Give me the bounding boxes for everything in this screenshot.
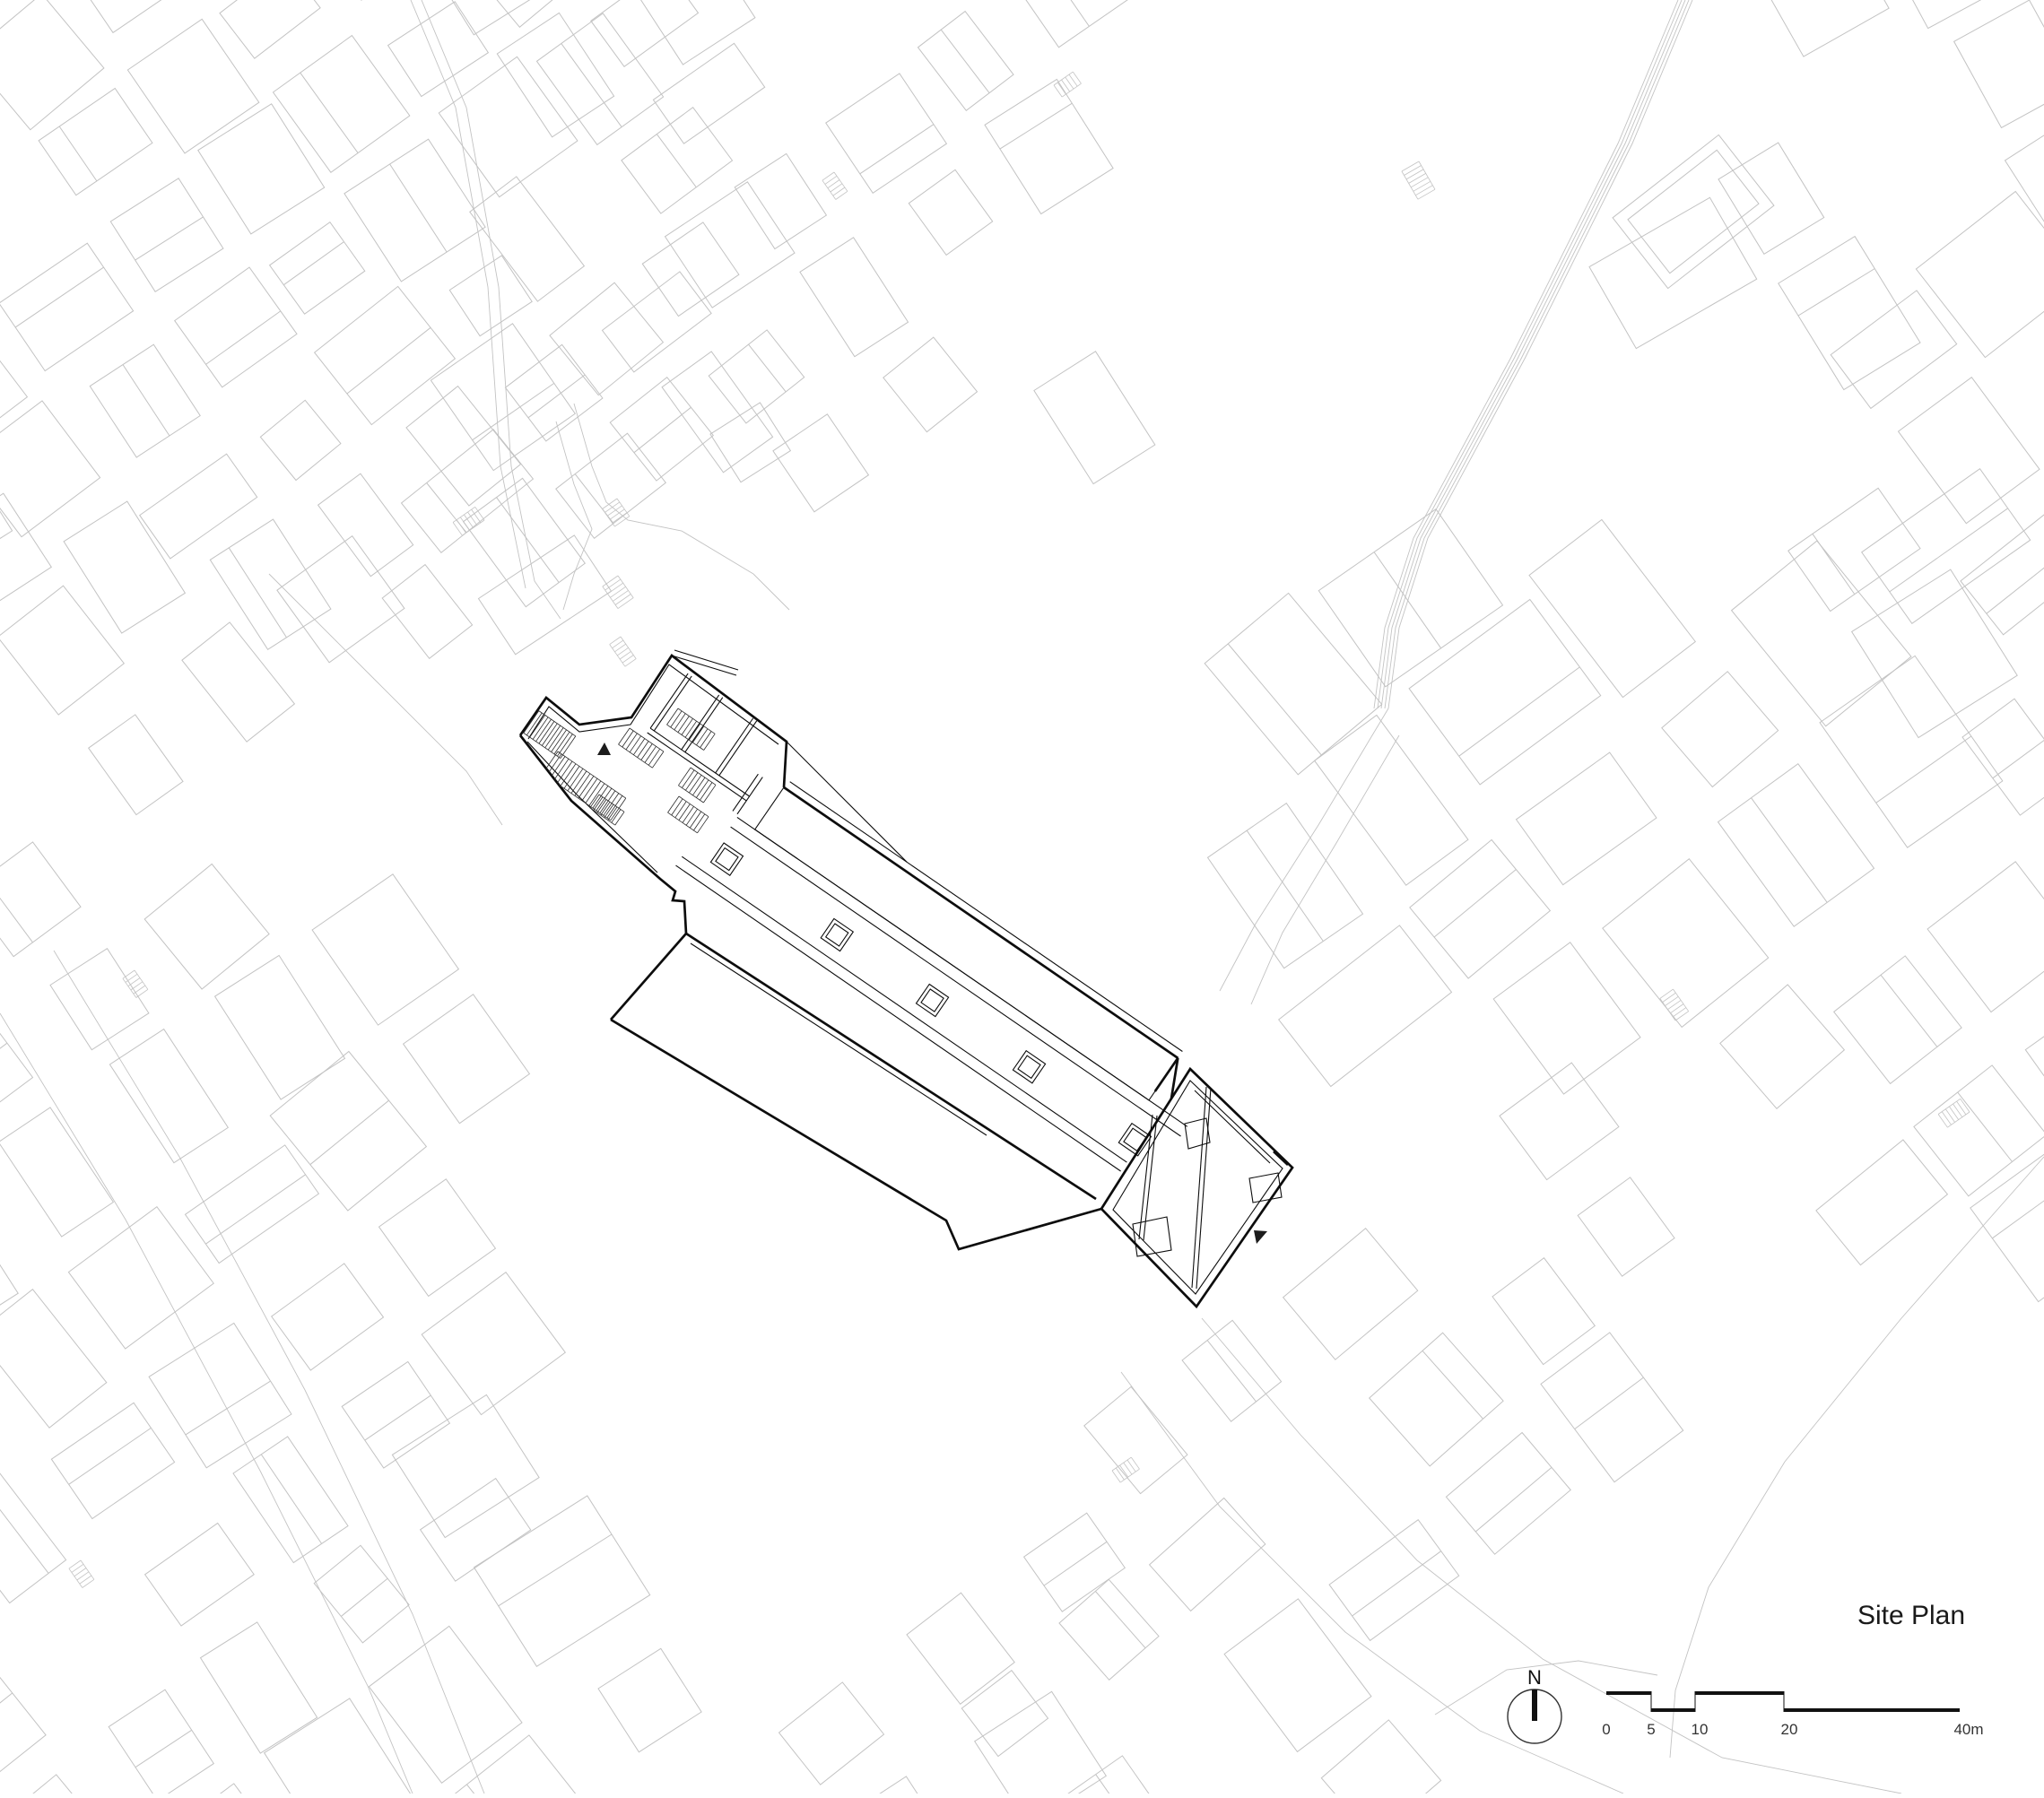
svg-text:N: N: [1527, 1666, 1542, 1689]
svg-text:10: 10: [1692, 1721, 1709, 1738]
svg-text:40m: 40m: [1953, 1721, 1983, 1738]
svg-text:Site Plan: Site Plan: [1857, 1601, 1965, 1630]
svg-text:0: 0: [1602, 1721, 1610, 1738]
svg-text:5: 5: [1647, 1721, 1655, 1738]
svg-text:20: 20: [1781, 1721, 1798, 1738]
